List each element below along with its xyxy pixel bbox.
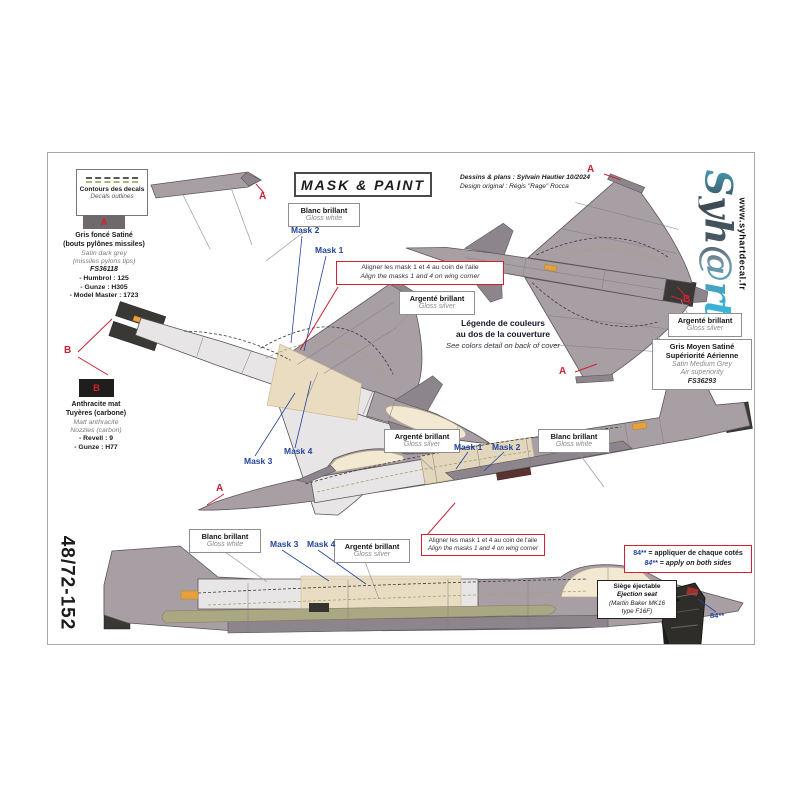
- label-fr1: Gris Moyen Satiné: [657, 342, 747, 351]
- ejection-seat-label: Siège éjectable Ejection seat (Martin Ba…: [597, 580, 677, 619]
- label-en: Gloss white: [194, 541, 256, 550]
- label-fr: Argenté brillant: [673, 316, 737, 325]
- label-fr: Blanc brillant: [543, 432, 605, 441]
- label-fr: Argenté brillant: [389, 432, 455, 441]
- paint-label-gloss-white-topview: Blanc brillant Gloss white: [288, 203, 360, 227]
- color-note-fr2: au dos de la couverture: [425, 329, 581, 340]
- swatch-a-fr1: Gris foncé Satiné: [54, 232, 154, 241]
- decal-outline-legend: Contours des decals Decals outlines: [76, 169, 148, 216]
- paint-label-gloss-silver-bottomview: Argenté brillant Gloss silver: [668, 313, 742, 337]
- swatch-b-fr2: Tuyères (carbone): [48, 410, 144, 419]
- legend-en: Decals outlines: [77, 193, 147, 200]
- both-sides-en-text: = apply on both sides: [658, 560, 732, 567]
- black-dash-sample: [86, 177, 138, 179]
- label-fr: Argenté brillant: [339, 542, 405, 551]
- swatch-b-en1: Matt anthracite: [48, 419, 144, 427]
- paint-label-gloss-white-lowprofile: Blanc brillant Gloss white: [189, 529, 261, 553]
- seat-fr: Siège éjectable: [600, 583, 674, 591]
- swatch-b-fr1: Anthracite mat: [48, 401, 144, 410]
- marker-a-bottomview-lower: A: [559, 366, 566, 377]
- swatch-b-paint1: - Revell : 9: [48, 435, 144, 443]
- sheet-code: 48/72-152: [56, 526, 78, 641]
- label-fr: Argenté brillant: [404, 294, 470, 303]
- seat-detail1: (Martin Baker MK16: [600, 600, 674, 608]
- swatch-a-paint3: - Model Master : 1723: [54, 292, 154, 300]
- color-b-description: Anthracite mat Tuyères (carbone) Matt an…: [48, 401, 144, 452]
- paint-label-gloss-white-midprofile: Blanc brillant Gloss white: [538, 429, 610, 453]
- swatch-a-letter: A: [101, 217, 108, 228]
- label-en: Gloss silver: [389, 441, 455, 450]
- both-sides-note: 84** = appliquer de chaque cotés 84** = …: [624, 545, 752, 573]
- label-fr2: Supériorité Aérienne: [657, 351, 747, 360]
- code-84: 84**: [633, 550, 646, 557]
- color-note-fr1: Légende de couleurs: [425, 318, 581, 329]
- label-en2: Air superiority: [657, 369, 747, 378]
- label-fr: Blanc brillant: [194, 532, 256, 541]
- label-en: Gloss silver: [404, 303, 470, 312]
- mask3-callout-lowprofile: Mask 3: [270, 539, 298, 549]
- marker-a-bottomview-upper: A: [587, 164, 594, 175]
- label-en: Gloss silver: [673, 325, 737, 334]
- mask3-callout-topview: Mask 3: [244, 456, 272, 466]
- color-swatch-b: B: [79, 379, 114, 397]
- swatch-a-paint2: - Gunze : H305: [54, 284, 154, 292]
- swatch-b-en2: Nozzles (carbon): [48, 427, 144, 435]
- label-en: Gloss white: [293, 215, 355, 224]
- paint-label-gloss-silver-lowprofile: Argenté brillant Gloss silver: [334, 539, 410, 563]
- swatch-a-fr2: (bouts pylônes missiles): [54, 241, 154, 250]
- color-legend-note: Légende de couleurs au dos de la couvert…: [425, 318, 581, 351]
- page-title: MASK & PAINT: [294, 172, 432, 197]
- legend-fr: Contours des decals: [77, 186, 147, 193]
- code-84: 84**: [645, 560, 658, 567]
- credit-line-2: Design original : Régis "Rage" Rocca: [460, 183, 590, 192]
- swatch-b-letter: B: [93, 383, 100, 394]
- align-note-en: Align the masks 1 and 4 on wing corner: [426, 545, 540, 553]
- seat-en: Ejection seat: [600, 591, 674, 599]
- mask2-callout-topview: Mask 2: [291, 225, 319, 235]
- marker-b-bottomview: B: [683, 294, 690, 305]
- seat-detail2: type F16F): [600, 608, 674, 616]
- label-en: Gloss white: [543, 441, 605, 450]
- paint-label-medium-grey: Gris Moyen Satiné Supériorité Aérienne S…: [652, 339, 752, 390]
- paint-label-gloss-silver-midprofile: Argenté brillant Gloss silver: [384, 429, 460, 453]
- swatch-a-fs: FS36118: [54, 266, 154, 275]
- mask4-callout-lowprofile: Mask 4: [307, 539, 335, 549]
- label-fs: FS36293: [657, 378, 747, 387]
- label-fr: Blanc brillant: [293, 206, 355, 215]
- marker-a-midprofile: A: [216, 483, 223, 494]
- both-sides-en: 84** = apply on both sides: [627, 559, 749, 569]
- swatch-a-en1: Satin dark grey: [54, 250, 154, 258]
- seat-decal-code: 84**: [710, 611, 724, 620]
- align-note-fr: Aligner les mask 1 et 4 au coin de l'ail…: [426, 537, 540, 545]
- decal-instruction-sheet: .af{fill:#a89fa5;stroke:#5c555b;stroke-w…: [47, 152, 755, 645]
- brand-block: www.syhartdecal.fr Syh@rt: [690, 157, 748, 332]
- both-sides-fr-text: = appliquer de chaque cotés: [646, 550, 742, 557]
- swatch-b-paint2: - Gunze : H77: [48, 444, 144, 452]
- paint-label-gloss-silver-topview: Argenté brillant Gloss silver: [399, 291, 475, 315]
- label-en: Gloss silver: [339, 551, 405, 560]
- credits: Dessins & plans : Sylvain Hautier 10/202…: [460, 174, 590, 191]
- align-note-topview: Aligner les mask 1 et 4 au coin de l'ail…: [336, 261, 504, 285]
- olive-dash-sample: [86, 181, 138, 183]
- marker-b-topview: B: [64, 345, 71, 356]
- credit-line-1: Dessins & plans : Sylvain Hautier 10/202…: [460, 174, 590, 183]
- color-a-description: Gris foncé Satiné (bouts pylônes missile…: [54, 232, 154, 301]
- color-note-en: See colors detail on back of cover: [425, 341, 581, 351]
- align-note-en: Align the masks 1 and 4 on wing corner: [341, 273, 499, 282]
- brand-logo: Syh@rt: [699, 157, 738, 332]
- swatch-a-en2: (missiles pylons tips): [54, 258, 154, 266]
- swatch-a-paint1: - Humbrol : 125: [54, 275, 154, 283]
- align-note-fr: Aligner les mask 1 et 4 au coin de l'ail…: [341, 264, 499, 273]
- marker-a-topview: A: [259, 191, 266, 202]
- mask4-callout-topview: Mask 4: [284, 446, 312, 456]
- mask1-callout-topview: Mask 1: [315, 245, 343, 255]
- page: .af{fill:#a89fa5;stroke:#5c555b;stroke-w…: [0, 0, 800, 800]
- color-swatch-a: A: [83, 215, 125, 229]
- both-sides-fr: 84** = appliquer de chaque cotés: [627, 549, 749, 559]
- align-note-lowprofile: Aligner les mask 1 et 4 au coin de l'ail…: [421, 534, 545, 556]
- label-en1: Satin Medium Grey: [657, 361, 747, 370]
- mask2-callout-midprofile: Mask 2: [492, 442, 520, 452]
- mask1-callout-midprofile: Mask 1: [454, 442, 482, 452]
